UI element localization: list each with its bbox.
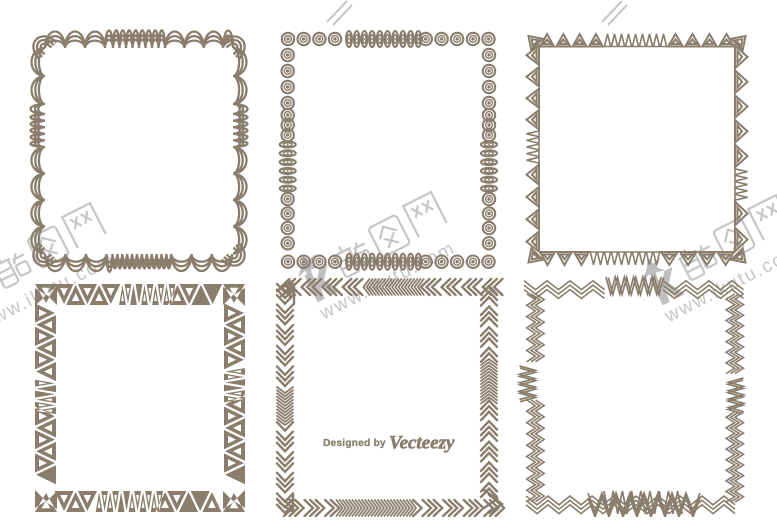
svg-text:Designed by: Designed by: [323, 438, 386, 449]
svg-text:Vecteezy: Vecteezy: [389, 433, 455, 454]
